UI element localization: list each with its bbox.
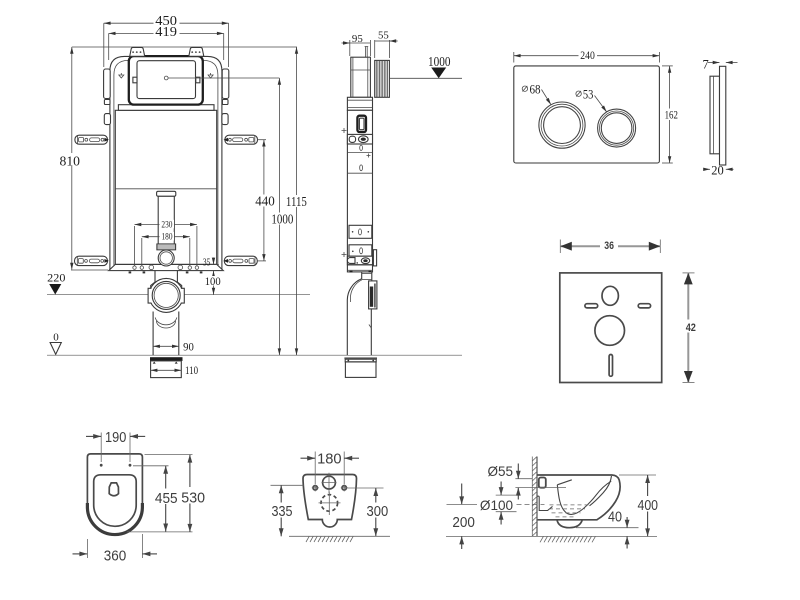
svg-text:220: 220 [47, 273, 65, 285]
svg-text:240: 240 [580, 48, 595, 62]
svg-text:190: 190 [105, 430, 126, 446]
svg-text:230: 230 [161, 220, 172, 230]
svg-text:68: 68 [530, 83, 541, 97]
svg-text:440: 440 [255, 195, 275, 210]
svg-text:90: 90 [183, 341, 194, 353]
svg-text:180: 180 [317, 452, 342, 468]
svg-text:360: 360 [104, 549, 127, 565]
svg-text:40: 40 [608, 510, 622, 526]
svg-text:0: 0 [53, 332, 59, 344]
svg-text:100: 100 [205, 276, 221, 288]
svg-text:53: 53 [583, 87, 594, 101]
svg-text:Ø100: Ø100 [480, 497, 513, 513]
svg-text:810: 810 [60, 155, 81, 170]
svg-text:162: 162 [665, 108, 678, 122]
svg-text:42: 42 [686, 322, 696, 334]
svg-text:200: 200 [452, 515, 475, 531]
svg-text:1115: 1115 [286, 195, 307, 210]
svg-text:110: 110 [185, 365, 198, 377]
svg-text:180: 180 [162, 232, 173, 242]
svg-text:419: 419 [155, 25, 177, 40]
svg-text:335: 335 [272, 504, 293, 520]
svg-text:400: 400 [638, 498, 659, 514]
svg-text:36: 36 [604, 240, 614, 252]
svg-text:35: 35 [203, 257, 211, 268]
svg-text:455: 455 [155, 491, 178, 507]
svg-text:530: 530 [181, 489, 205, 506]
svg-text:55: 55 [378, 31, 389, 42]
svg-text:95: 95 [352, 34, 363, 45]
svg-text:20: 20 [711, 164, 724, 178]
svg-text:300: 300 [367, 504, 389, 520]
svg-text:Ø55: Ø55 [488, 463, 514, 479]
svg-text:1000: 1000 [428, 54, 451, 69]
svg-text:1000: 1000 [271, 213, 293, 228]
svg-text:7: 7 [703, 58, 709, 72]
